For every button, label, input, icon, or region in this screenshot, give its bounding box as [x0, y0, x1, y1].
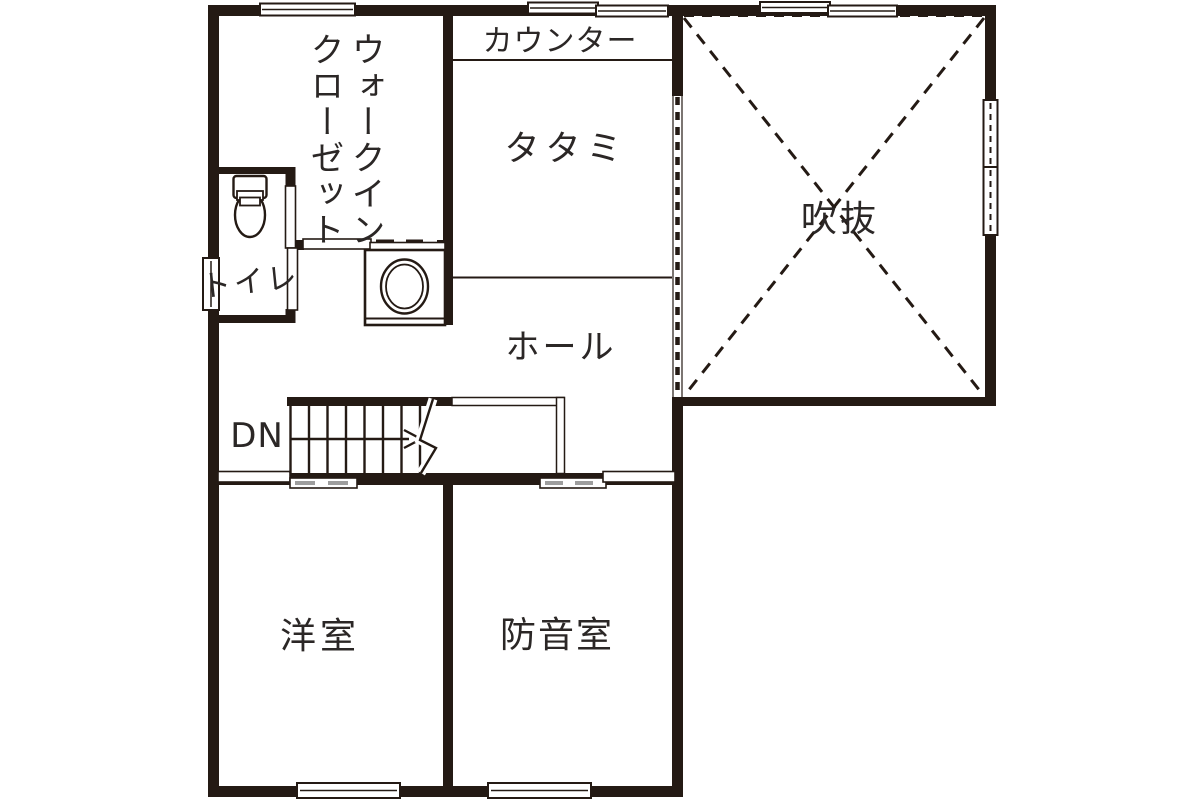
western-door-dash-2: [328, 481, 348, 485]
stairs-direction-label: DN: [230, 416, 284, 456]
wall-toilet-top: [208, 167, 295, 174]
wall-east-upper: [672, 16, 683, 96]
wic-label-line1: ウォークイン: [345, 32, 385, 248]
wall-toilet-right-lower: [286, 309, 296, 323]
room-label-walk-in-closet: ウォークインクローゼット: [303, 32, 385, 248]
wall-room-divider: [443, 473, 453, 786]
stair-landing-rail-right: [557, 398, 565, 474]
wall-bottom: [208, 786, 683, 797]
washbasin-icon: [365, 250, 445, 325]
soundproof-door-dash-1: [545, 481, 563, 485]
room-label-counter: カウンター: [483, 16, 638, 60]
window-void-right-2: [984, 167, 998, 235]
floor-plan: ウォークインクローゼット カウンター タタミ 吹抜 トイレ ホール DN 洋室 …: [0, 0, 1200, 800]
wall-toilet-bottom: [208, 315, 295, 323]
western-door-dash-1: [295, 481, 315, 485]
wic-door-track-dash-2: [406, 240, 423, 244]
soundproof-door-panel-2: [603, 472, 675, 483]
washbasin-bowl-outer: [381, 260, 428, 314]
window-void-right-1: [984, 100, 998, 167]
soundproof-door-dash-2: [575, 481, 593, 485]
toilet-flush-plate: [240, 198, 260, 206]
wall-toilet-right-upper: [286, 167, 296, 187]
western-door-panel-1: [218, 472, 290, 483]
stair-landing-rail-top: [452, 398, 564, 406]
room-label-void: 吹抜: [801, 190, 879, 242]
room-label-soundproof-room: 防音室: [500, 606, 614, 658]
wall-left: [208, 5, 219, 797]
wic-label-line2: クローゼット: [304, 32, 344, 248]
wall-void-bottom: [672, 397, 996, 406]
room-label-tatami: タタミ: [504, 121, 627, 172]
toilet-door-panel-1: [286, 186, 296, 248]
room-label-western-room: 洋室: [280, 607, 360, 659]
room-label-hall: ホール: [506, 320, 617, 369]
stairs: [291, 398, 565, 474]
wall-east-lower: [672, 397, 683, 786]
toilet-icon: [234, 176, 267, 237]
